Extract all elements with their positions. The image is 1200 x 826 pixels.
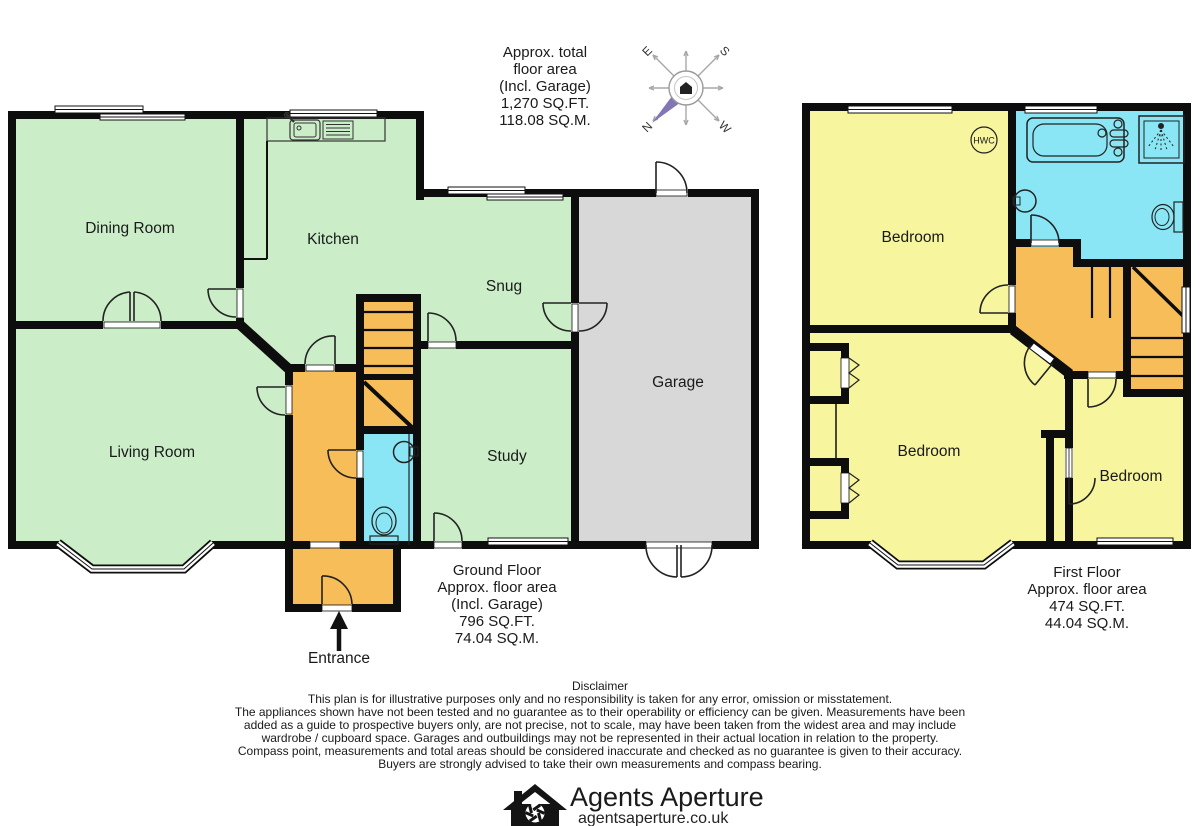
brand-url: agentsaperture.co.uk [578, 810, 729, 826]
bedroom2-label: Bedroom [898, 443, 961, 460]
brand-name: Agents Aperture [570, 782, 764, 812]
floorplan-canvas: Approx. total floor area (Incl. Garage) … [0, 0, 1200, 826]
disclaimer-line: Buyers are strongly advised to take thei… [378, 757, 822, 771]
first-area-line: First Floor [1053, 564, 1121, 581]
ground-floor-area-label: Ground Floor Approx. floor area (Incl. G… [437, 562, 557, 647]
ground-area-line: (Incl. Garage) [451, 596, 543, 613]
bedroom3-label: Bedroom [1100, 468, 1163, 485]
disclaimer-line: The appliances shown have not been teste… [235, 705, 965, 719]
first-area-line: 474 SQ.FT. [1049, 598, 1125, 615]
total-area-line: Approx. total [503, 44, 587, 61]
first-area-line: 44.04 SQ.M. [1045, 615, 1129, 632]
total-area-line: (Incl. Garage) [499, 78, 591, 95]
snug-label: Snug [486, 278, 522, 295]
total-area-line: 1,270 SQ.FT. [501, 95, 589, 112]
ground-area-line: Ground Floor [453, 562, 541, 579]
compass-s: S [717, 43, 733, 59]
study-label: Study [487, 448, 527, 465]
first-floor-area-label: First Floor Approx. floor area 474 SQ.FT… [1027, 564, 1147, 632]
disclaimer-title: Disclaimer [572, 679, 628, 693]
entrance-label: Entrance [308, 650, 370, 667]
total-area-line: floor area [513, 61, 577, 78]
disclaimer-block: Disclaimer This plan is for illustrative… [235, 679, 965, 771]
brand-logo: Agents Aperture agentsaperture.co.uk [503, 782, 764, 826]
dining-room-label: Dining Room [85, 220, 175, 237]
compass-e: E [639, 43, 655, 59]
living-room-label: Living Room [109, 444, 195, 461]
garage-label: Garage [652, 374, 704, 391]
ground-area-line: 74.04 SQ.M. [455, 630, 539, 647]
kitchen-label: Kitchen [307, 231, 359, 248]
porch-area [289, 545, 397, 608]
ground-room-fills [12, 115, 755, 608]
total-area-line: 118.08 SQ.M. [499, 112, 590, 129]
bedroom3-area [1073, 375, 1187, 545]
disclaimer-line: wardrobe / cupboard space. Garages and o… [261, 731, 939, 745]
disclaimer-line: Compass point, measurements and total ar… [238, 744, 962, 758]
first-area-line: Approx. floor area [1027, 581, 1147, 598]
house-aperture-icon [503, 784, 567, 826]
disclaimer-line: added as a guide to prospective buyers o… [244, 718, 957, 732]
floorplan-page: Approx. total floor area (Incl. Garage) … [0, 0, 1200, 826]
first-floor-plan: HWC [802, 103, 1191, 632]
compass-rose-icon: E S N W [639, 43, 734, 136]
ground-floor-plan: Dining Room Kitchen Snug Living Room Stu… [8, 106, 759, 667]
cupboard-area [1054, 438, 1065, 545]
ground-area-line: Approx. floor area [437, 579, 557, 596]
total-area-label: Approx. total floor area (Incl. Garage) … [499, 44, 591, 129]
hwc-label: HWC [973, 136, 995, 146]
ground-area-line: 796 SQ.FT. [459, 613, 535, 630]
entrance-arrow-icon [330, 611, 348, 651]
bedroom1-label: Bedroom [882, 229, 945, 246]
disclaimer-line: This plan is for illustrative purposes o… [308, 692, 892, 706]
hallway-area [289, 368, 360, 545]
compass-n: N [639, 119, 655, 135]
stairs-area [360, 294, 421, 434]
garage-area [575, 193, 755, 545]
